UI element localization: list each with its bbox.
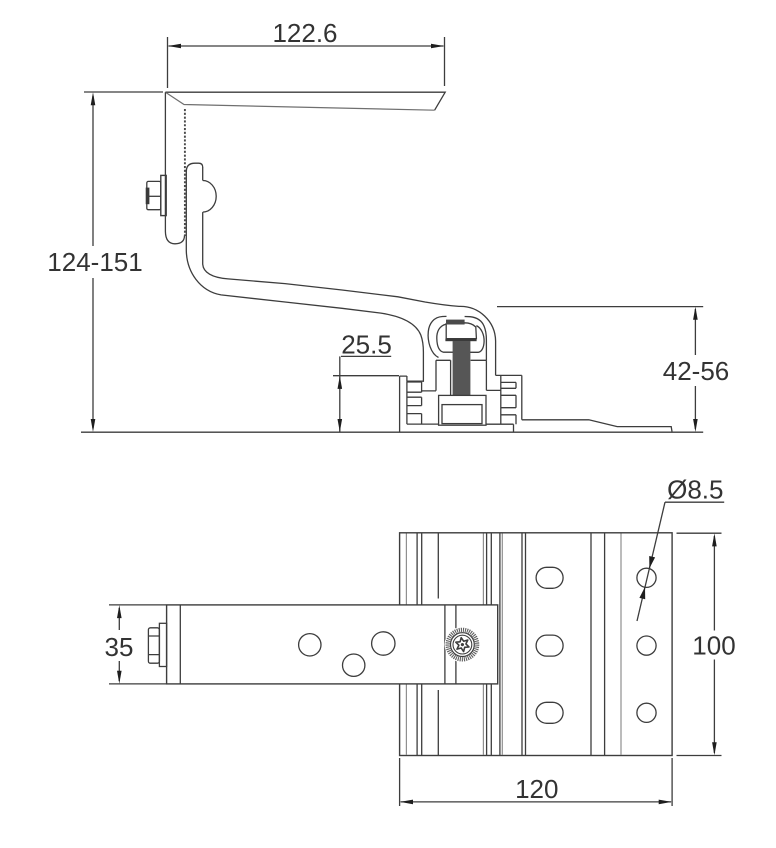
svg-text:Ø8.5: Ø8.5 — [667, 475, 723, 505]
svg-text:42-56: 42-56 — [663, 356, 730, 386]
svg-text:124-151: 124-151 — [47, 247, 142, 277]
svg-text:122.6: 122.6 — [272, 18, 337, 48]
svg-text:100: 100 — [692, 631, 735, 661]
svg-text:25.5: 25.5 — [341, 330, 392, 360]
svg-text:120: 120 — [515, 774, 558, 804]
svg-text:35: 35 — [105, 632, 134, 662]
